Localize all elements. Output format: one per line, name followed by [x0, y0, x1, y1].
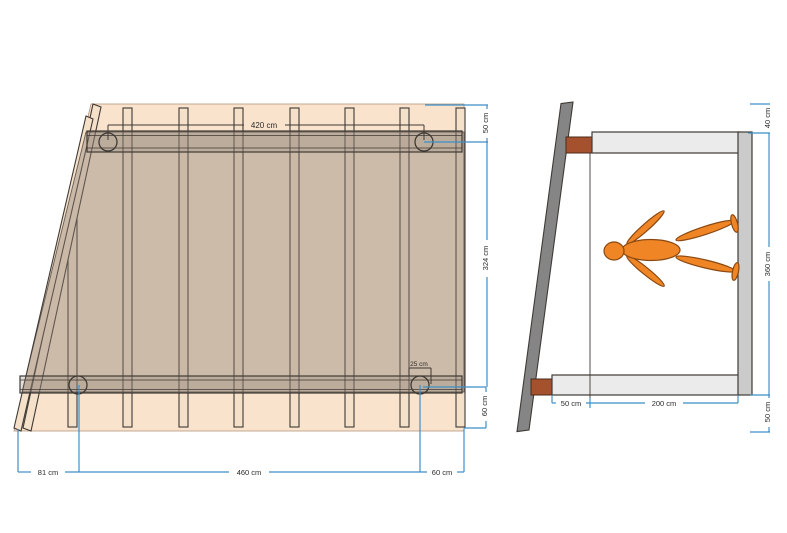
- figure-torso: [622, 240, 680, 261]
- top-beam: [87, 131, 462, 152]
- dim-label-top-span: 420 cm: [251, 121, 278, 130]
- construction-drawing: 420 cm 25 cm 50 cm 324 cm 60 cm: [0, 0, 787, 533]
- side-top-beam: [592, 132, 740, 153]
- dim-label-bottom-right: 60 cm: [432, 468, 452, 477]
- dim-label-right-top: 50 cm: [481, 113, 490, 133]
- dim-label-bottom-left: 81 cm: [38, 468, 58, 477]
- figure-head: [604, 242, 624, 260]
- side-bottom-dimension-chain: 50 cm 200 cm: [552, 395, 738, 408]
- dim-label-side-right-middle: 360 cm: [763, 252, 772, 277]
- figure-leg: [675, 253, 736, 275]
- side-post: [738, 132, 752, 395]
- drawing-canvas: 420 cm 25 cm 50 cm 324 cm 60 cm: [0, 0, 787, 533]
- bottom-beam: [20, 376, 462, 393]
- roof-panel: [22, 132, 464, 392]
- figure-leg: [675, 217, 735, 244]
- dim-label-side-bottom-left: 50 cm: [561, 399, 581, 408]
- dim-label-post-offset: 25 cm: [410, 361, 428, 368]
- dim-label-right-bottom: 60 cm: [480, 396, 489, 416]
- dim-label-side-bottom-middle: 200 cm: [652, 399, 677, 408]
- side-view: 40 cm 360 cm 50 cm 50 cm 200 cm: [517, 102, 772, 432]
- dim-label-bottom-middle: 460 cm: [237, 468, 262, 477]
- dim-label-side-right-bottom: 50 cm: [763, 402, 772, 422]
- dim-label-side-right-top: 40 cm: [763, 108, 772, 128]
- plan-view: 420 cm 25 cm 50 cm 324 cm 60 cm: [14, 104, 490, 477]
- top-bracket: [566, 137, 592, 153]
- human-figure: [604, 208, 740, 288]
- bottom-bracket: [531, 379, 552, 395]
- dim-label-right-middle: 324 cm: [481, 246, 490, 271]
- side-bottom-beam: [552, 375, 740, 395]
